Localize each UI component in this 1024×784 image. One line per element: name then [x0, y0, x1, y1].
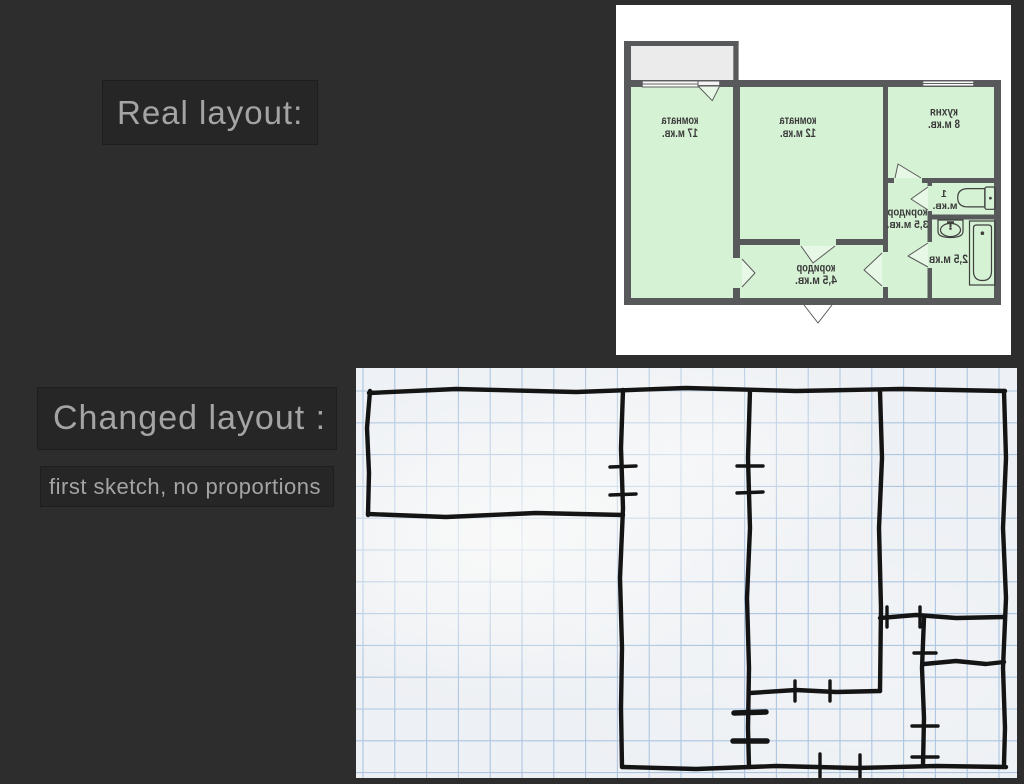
svg-text:2,5 м.кв: 2,5 м.кв — [929, 252, 968, 266]
svg-text:4,5 м.кв.: 4,5 м.кв. — [795, 273, 837, 287]
svg-text:комната: комната — [661, 113, 698, 127]
svg-text:3,5 м.кв.: 3,5 м.кв. — [887, 219, 929, 231]
svg-text:12 м.кв.: 12 м.кв. — [780, 126, 816, 140]
svg-text:м.кв.: м.кв. — [932, 201, 957, 212]
svg-text:17 м.кв.: 17 м.кв. — [662, 126, 698, 140]
svg-text:8 м.кв.: 8 м.кв. — [928, 117, 960, 131]
svg-text:комната: комната — [779, 113, 816, 127]
svg-text:1: 1 — [941, 189, 947, 200]
svg-text:коридор: коридор — [887, 207, 927, 219]
